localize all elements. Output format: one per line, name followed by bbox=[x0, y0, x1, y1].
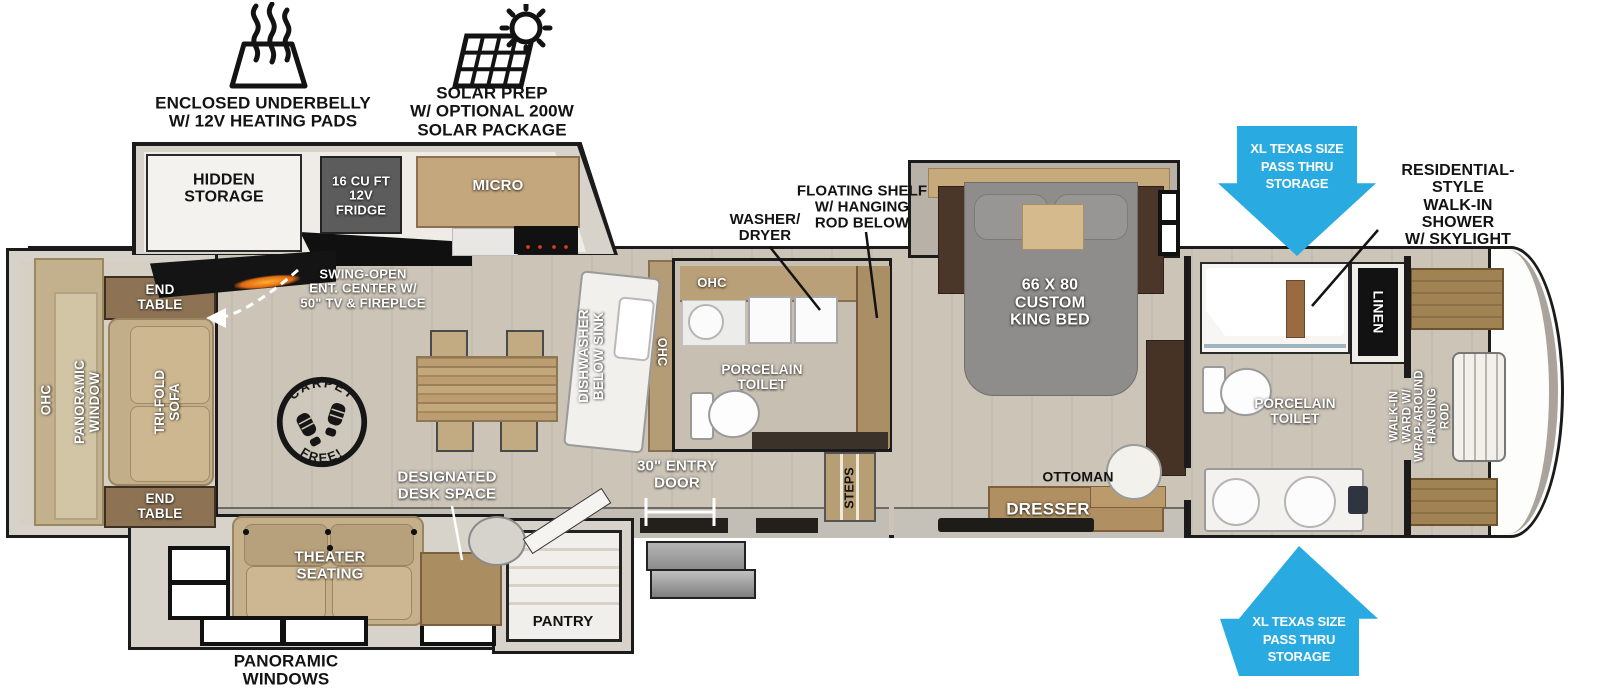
underbelly-label: ENCLOSED UNDERBELLY W/ 12V HEATING PADS bbox=[155, 95, 371, 132]
sofa-cushion-2 bbox=[130, 406, 210, 482]
shower-bench bbox=[1286, 280, 1305, 338]
wall-bedroom-bath bbox=[1184, 256, 1191, 468]
washer bbox=[748, 296, 792, 344]
vanity-accessory bbox=[1348, 486, 1368, 514]
panoramic-window-strip bbox=[54, 292, 98, 520]
wardrobe-ribbed-unit bbox=[1452, 352, 1506, 462]
entry-steps-outer2 bbox=[650, 569, 756, 599]
floorplan-canvas: ENCLOSED UNDERBELLY W/ 12V HEATING PADS … bbox=[0, 0, 1600, 699]
vanity-sink-2 bbox=[1284, 476, 1336, 528]
kitchen-counter-white bbox=[452, 228, 518, 256]
corner-window-mullion bbox=[172, 580, 226, 585]
micro-cabinet bbox=[416, 156, 580, 228]
midbath-sink bbox=[688, 304, 724, 340]
wall-bath-wardrobe bbox=[1404, 256, 1411, 378]
stove-burners bbox=[522, 244, 570, 250]
shower-pan bbox=[1206, 268, 1344, 336]
bed-tray bbox=[1022, 204, 1084, 250]
carpet-free-badge: CARPET FREE! bbox=[274, 374, 370, 470]
entry-mat-2 bbox=[756, 518, 818, 533]
floating-shelf-wardrobe bbox=[856, 266, 890, 448]
midbath-counter-dark bbox=[752, 432, 888, 449]
slide-window-a-mullion bbox=[280, 620, 286, 642]
entry-steps-outer bbox=[646, 541, 746, 571]
desk-chair bbox=[468, 516, 526, 566]
sofa-cushion-1 bbox=[130, 326, 210, 404]
bedroom-rug bbox=[938, 518, 1094, 532]
shower-glass bbox=[1204, 344, 1346, 348]
solar-prep-icon bbox=[438, 4, 553, 90]
ottoman bbox=[1106, 444, 1162, 500]
heating-pads-icon bbox=[212, 2, 312, 92]
panoramic-windows-label: PANORAMIC WINDOWS bbox=[234, 653, 338, 690]
washer-dryer-label: WASHER/ DRYER bbox=[730, 212, 801, 244]
pass-thru-arrow-up: XL TEXAS SIZE PASS THRU STORAGE bbox=[1220, 546, 1378, 676]
wardrobe-shelf-bottom bbox=[1408, 478, 1498, 526]
wardrobe-shelf-top bbox=[1410, 268, 1504, 330]
linen-cabinet-door bbox=[1358, 268, 1398, 356]
bedroom-window-mullion bbox=[1160, 220, 1176, 225]
theater-seat-2 bbox=[332, 566, 412, 620]
dining-chair-4 bbox=[500, 420, 538, 452]
fridge bbox=[320, 156, 402, 234]
island-sink bbox=[613, 296, 655, 361]
shower-label: RESIDENTIAL-STYLE WALK-IN SHOWER W/ SKYL… bbox=[1387, 162, 1529, 248]
vanity-sink-1 bbox=[1212, 478, 1260, 526]
wall-bath-wardrobe-2 bbox=[1404, 460, 1411, 536]
entry-mat-1 bbox=[640, 518, 728, 533]
theater-seat-1 bbox=[246, 566, 326, 620]
theater-cupholders bbox=[240, 524, 420, 554]
pass-thru-arrow-down: XL TEXAS SIZE PASS THRU STORAGE bbox=[1218, 126, 1376, 256]
dining-table bbox=[416, 356, 558, 422]
solar-label: SOLAR PREP W/ OPTIONAL 200W SOLAR PACKAG… bbox=[410, 84, 574, 139]
dryer bbox=[794, 296, 838, 344]
end-table-bottom bbox=[104, 486, 216, 528]
bedroom-steps bbox=[824, 452, 876, 522]
wall-bedroom-bath-2 bbox=[1184, 500, 1191, 536]
dining-chair-3 bbox=[436, 420, 474, 452]
pass-thru-top-label: XL TEXAS SIZE PASS THRU STORAGE bbox=[1218, 140, 1376, 193]
hidden-storage-box bbox=[146, 154, 302, 252]
pass-thru-bottom-label: XL TEXAS SIZE PASS THRU STORAGE bbox=[1220, 613, 1378, 666]
